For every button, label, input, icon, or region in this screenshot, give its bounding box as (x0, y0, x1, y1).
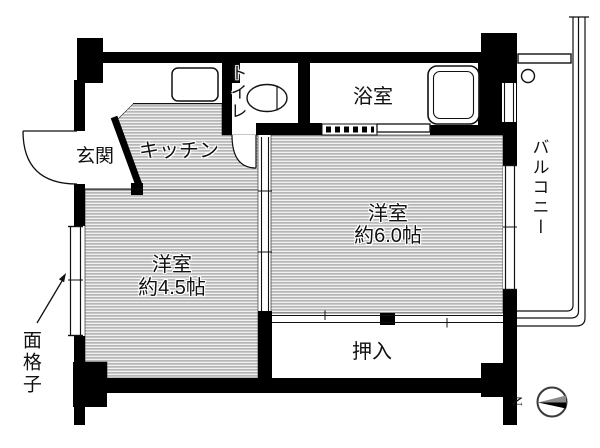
balcony-partition (518, 54, 571, 63)
label-bedroom-large-name: 洋室 (330, 203, 446, 225)
wall-bath-bottom-mid (310, 125, 322, 135)
label-entrance: 玄関 (76, 146, 114, 168)
wall-top (103, 52, 481, 63)
bathtub-outer (428, 66, 479, 124)
floorplan-canvas: 玄関 キッチン トイレ 浴室 洋室 約6.0帖 洋室 約4.5帖 押入 バルコニ… (0, 0, 600, 448)
label-toilet: トイレ (227, 64, 247, 121)
wall-bottomright-pillar (481, 363, 505, 397)
wall-bottom (100, 378, 481, 393)
label-window-grate: 面格子 (19, 330, 41, 396)
wall-left-mid (74, 184, 85, 226)
label-compass-north: N (511, 396, 527, 406)
wall-bath-bottom-right (430, 125, 503, 135)
wall-left-upper (74, 80, 85, 131)
wall-closet-pier (380, 313, 395, 325)
window-grate-callout (37, 273, 66, 323)
kitchen-sink (172, 68, 218, 101)
wall-bottomleft-tail (74, 407, 85, 425)
entrance-door-swing (23, 131, 77, 184)
wall-left-lower (74, 336, 85, 364)
toilet-bowl (247, 85, 287, 112)
floorplan-drawing (0, 0, 600, 448)
grate-arrow-head (59, 273, 66, 282)
label-balcony: バルコニー (529, 138, 549, 238)
bath-openings (322, 124, 430, 135)
grate-arrow-line (37, 281, 62, 323)
wall-closet-left (258, 311, 272, 378)
label-bedroom-large-size: 約6.0帖 (330, 225, 446, 247)
label-kitchen: キッチン (139, 140, 219, 163)
wall-right-upper (503, 127, 517, 165)
label-bathroom: 浴室 (353, 86, 393, 109)
label-bedroom-small-name: 洋室 (112, 254, 232, 277)
label-bedroom-small-size: 約4.5帖 (112, 277, 232, 300)
wall-topleft-pillar (77, 38, 103, 83)
compass (538, 388, 567, 417)
bath-sliding-door (377, 124, 430, 132)
label-closet: 押入 (352, 341, 392, 364)
label-bedroom-small: 洋室 約4.5帖 (112, 254, 232, 300)
label-bedroom-large: 洋室 約6.0帖 (330, 203, 446, 247)
balcony-drain (522, 70, 535, 83)
